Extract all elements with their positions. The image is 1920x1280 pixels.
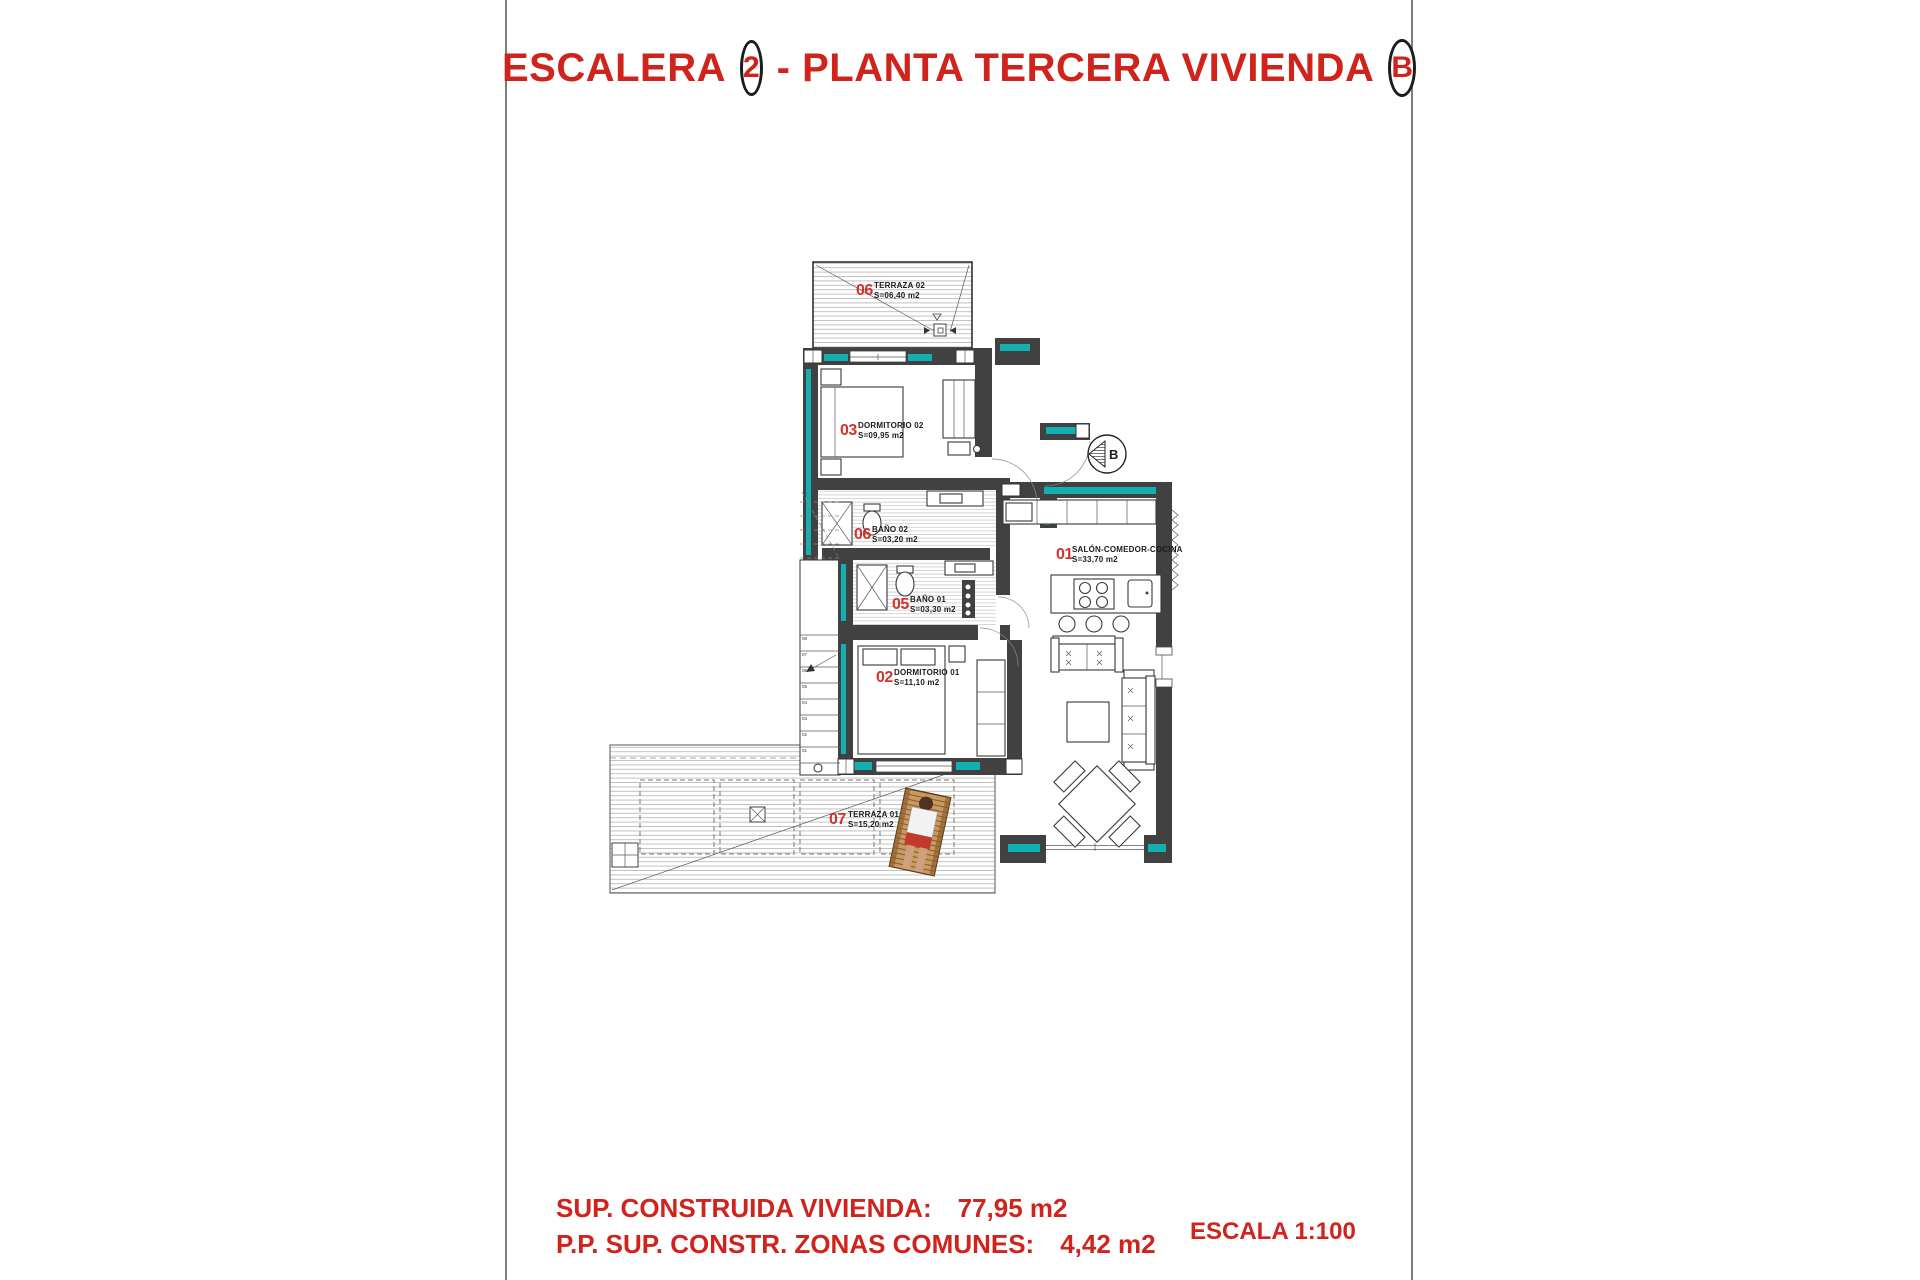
common-zones-line: P.P. SUP. CONSTR. ZONAS COMUNES:4,42 m2 <box>556 1226 1156 1262</box>
stair-step-label: 05 <box>802 684 808 689</box>
stair-step-label: 07 <box>802 652 808 657</box>
common-zones-value: 4,42 m2 <box>1060 1229 1155 1259</box>
room-name: TERRAZA 01 <box>848 810 899 819</box>
scale-note: ESCALA 1:100 <box>1190 1218 1356 1246</box>
room-area: S=03,20 m2 <box>872 535 918 544</box>
built-area-line: SUP. CONSTRUIDA VIVIENDA:77,95 m2 <box>556 1190 1156 1226</box>
built-area-value: 77,95 m2 <box>958 1193 1068 1223</box>
room-name: DORMITORIO 01 <box>894 668 960 677</box>
section-marker: B <box>1088 435 1126 473</box>
room-name: DORMITORIO 02 <box>858 421 924 430</box>
room-area: S=33,70 m2 <box>1072 555 1118 564</box>
terrace-02 <box>813 262 972 348</box>
room-number: 05 <box>892 596 909 613</box>
room-name: TERRAZA 02 <box>874 281 925 290</box>
room-area: S=03,30 m2 <box>910 605 956 614</box>
built-area-label: SUP. CONSTRUIDA VIVIENDA: <box>556 1193 932 1223</box>
stair-step-label: 02 <box>802 732 808 737</box>
stair-step-label: 04 <box>802 700 808 705</box>
common-zones-label: P.P. SUP. CONSTR. ZONAS COMUNES: <box>556 1229 1034 1259</box>
room-number: 06 <box>856 282 873 299</box>
stair-step-label: 01 <box>802 748 808 753</box>
staircase-number-badge: 2 <box>740 40 763 96</box>
room-name: BAÑO 02 <box>872 525 908 534</box>
room-number: 06 <box>854 526 871 543</box>
dwelling-letter-badge: B <box>1388 39 1416 97</box>
room-number: 02 <box>876 669 893 686</box>
room-area: S=15,20 m2 <box>848 820 894 829</box>
floor-plan: B <box>600 210 1250 930</box>
room-number: 03 <box>840 422 857 439</box>
room-area: S=11,10 m2 <box>894 678 940 687</box>
sheet-border-right <box>1411 0 1413 1280</box>
stair-step-label: 03 <box>802 716 808 721</box>
drawing-title: ESCALERA 2 - PLANTA TERCERA VIVIENDA B <box>507 36 1411 100</box>
room-area: S=09,95 m2 <box>858 431 904 440</box>
area-summary: SUP. CONSTRUIDA VIVIENDA:77,95 m2 P.P. S… <box>556 1190 1156 1262</box>
room-area: S=06,40 m2 <box>874 291 920 300</box>
stair-step-label: 06 <box>802 668 808 673</box>
section-marker-letter: B <box>1109 447 1118 462</box>
stair-step-label: 08 <box>802 636 808 641</box>
sheet-border-left <box>505 0 507 1280</box>
room-number: 07 <box>829 811 846 828</box>
room-name: BAÑO 01 <box>910 595 946 604</box>
room-name: SALÓN-COMEDOR-COCINA <box>1072 545 1183 554</box>
title-part2: - PLANTA TERCERA VIVIENDA <box>777 46 1375 91</box>
bedroom-01-furniture <box>858 646 1005 756</box>
title-part1: ESCALERA <box>502 46 726 91</box>
room-number: 01 <box>1056 546 1073 563</box>
